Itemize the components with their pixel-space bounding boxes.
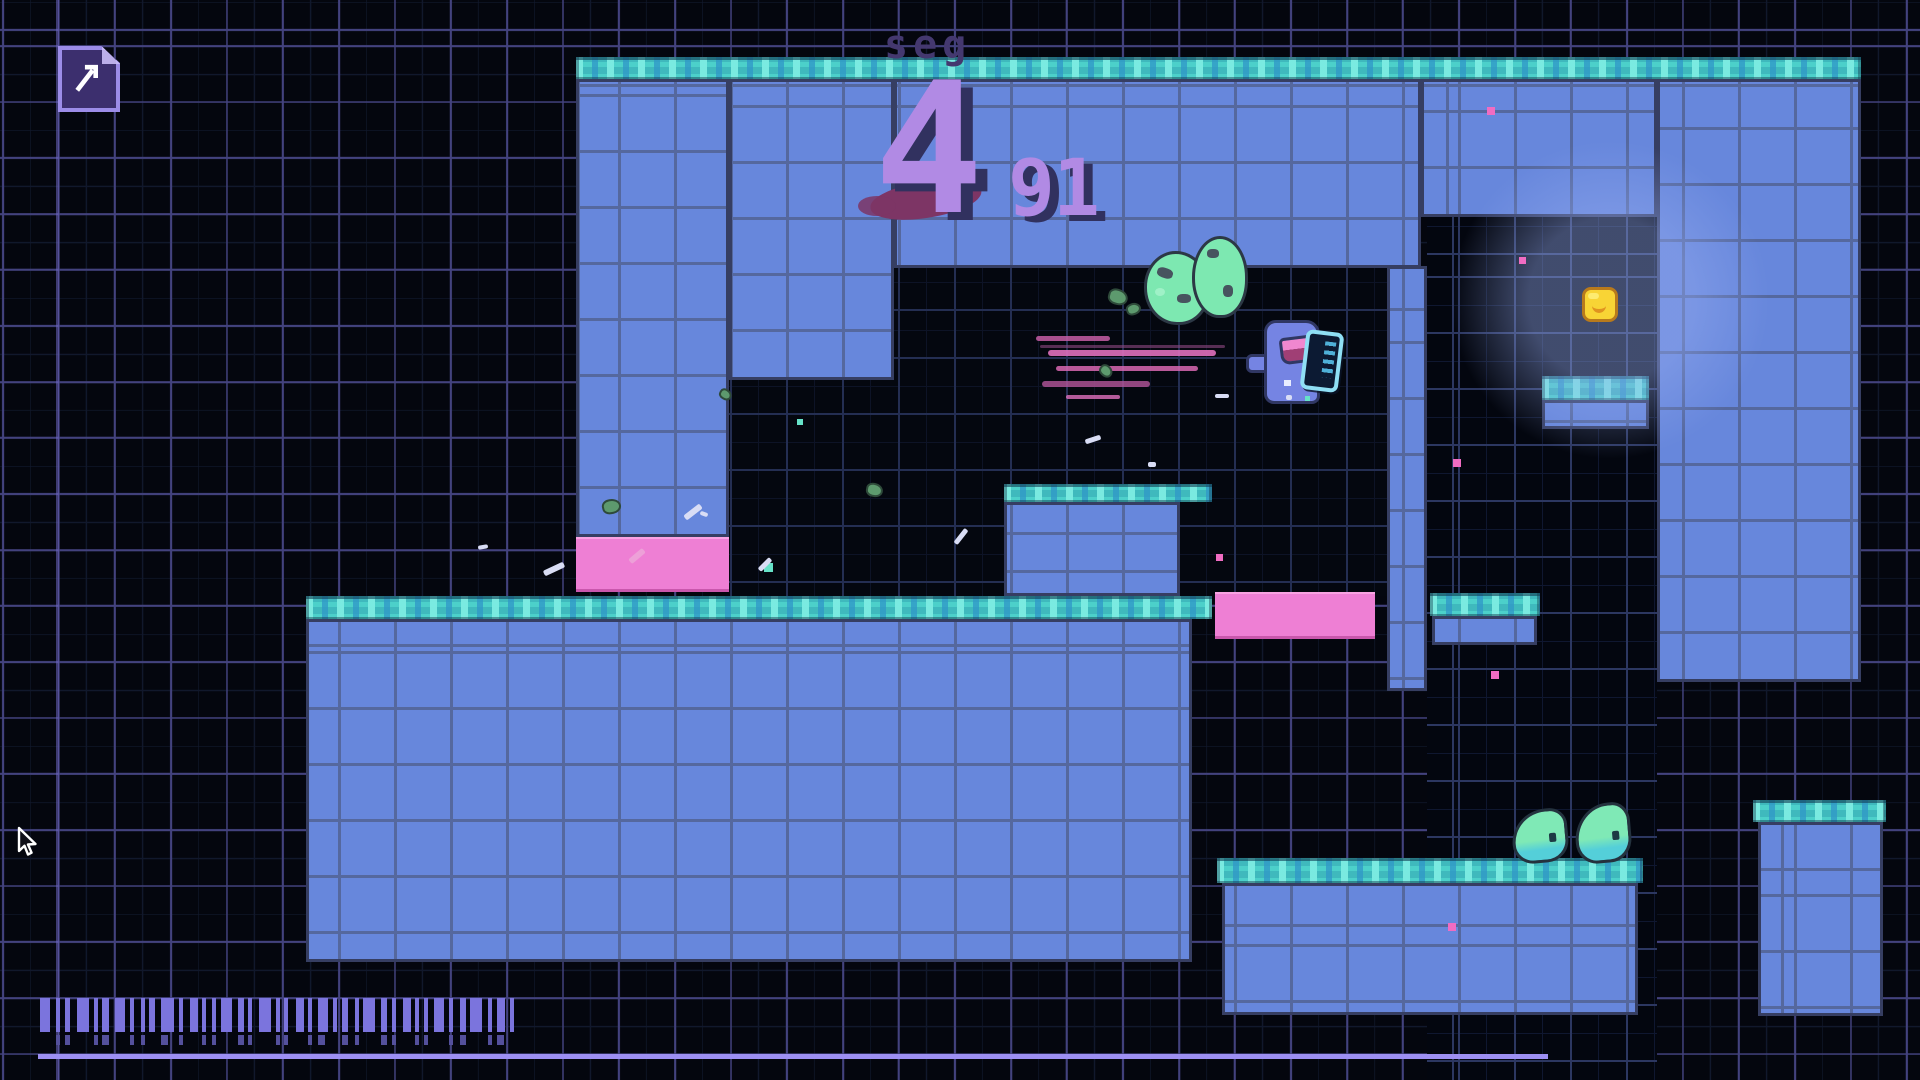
barcode-bar [259,998,271,1032]
mouse-cursor-icon [16,826,40,858]
barcode-bar [333,998,337,1032]
barcode-bar [238,998,244,1032]
barcode-bar [179,1035,183,1045]
barcode-bar [65,998,70,1032]
barcode-bar [296,998,304,1032]
barcode-bar [460,998,466,1032]
barcode-bar [221,998,232,1032]
barcode-bar [102,998,109,1032]
barcode-bar [355,998,359,1032]
barcode-bar [202,1035,206,1045]
barcode-bar [449,1035,453,1045]
barcode-bar [284,1035,288,1045]
barcode-bar [470,998,482,1032]
barcode-bar [212,998,216,1032]
barcode-bar [381,998,387,1032]
barcode-bar [65,1035,70,1045]
barcode-bar [460,1035,466,1045]
barcode-bar [56,1035,60,1045]
barcode-bar [449,998,453,1032]
barcode-bar [415,998,419,1032]
barcode-bar [342,998,348,1032]
barcode-bar [202,998,206,1032]
barcode-bar [179,998,183,1032]
barcode-decoration [0,0,1920,1080]
barcode-bar [510,998,514,1032]
barcode-bar [342,1035,348,1045]
barcode-bar [424,1035,428,1045]
barcode-bar [248,998,252,1032]
barcode-bar [94,998,98,1032]
barcode-bar [308,998,312,1032]
barcode-bar [318,1035,325,1045]
barcode-bar [355,1035,359,1045]
barcode-bar [130,1035,134,1045]
barcode-bar [381,1035,387,1045]
barcode-bar [77,998,89,1032]
barcode-bar [161,998,174,1032]
barcode-bar [363,998,375,1032]
barcode-bar [276,998,280,1032]
barcode-bar [284,998,288,1032]
barcode-bar [238,1035,244,1045]
barcode-bar [415,1035,419,1045]
barcode-bar [130,998,134,1032]
barcode-bar [56,998,60,1032]
barcode-bar [212,1035,216,1045]
barcode-bar [248,1035,252,1045]
barcode-bar [276,1035,280,1045]
barcode-bar [40,998,50,1032]
barcode-bar [102,1035,109,1045]
barcode-bar [488,1035,492,1045]
barcode-bar [318,998,328,1032]
barcode-bar [497,1035,504,1045]
barcode-bar [392,998,396,1032]
barcode-bar [392,1035,396,1045]
barcode-bar [497,998,505,1032]
barcode-bar [94,1035,98,1045]
barcode-bar [403,998,411,1032]
barcode-bar [161,1035,168,1045]
barcode-bar [141,1035,145,1045]
game-viewport: seg 4 91 [0,0,1920,1080]
barcode-bar [115,998,125,1032]
barcode-bar [141,998,145,1032]
barcode-bar [190,998,198,1032]
barcode-bar [434,998,444,1032]
barcode-bar [488,998,492,1032]
barcode-bar [308,1035,312,1045]
barcode-bar [149,998,155,1032]
barcode-bar [424,998,428,1032]
